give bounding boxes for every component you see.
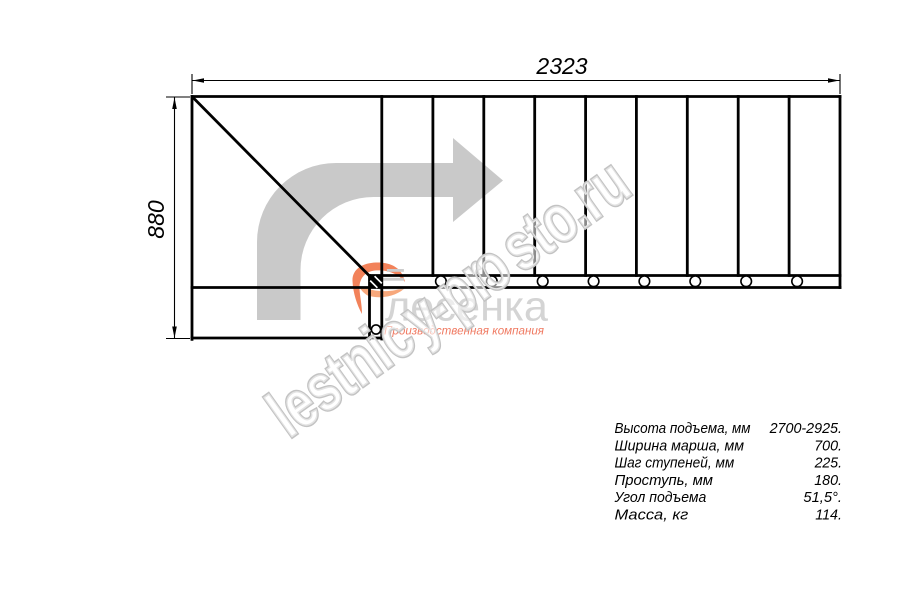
svg-text:180.: 180. — [814, 472, 842, 489]
svg-text:Шаг ступеней, мм: Шаг ступеней, мм — [615, 455, 735, 472]
svg-text:Угол подъема: Угол подъема — [614, 489, 707, 506]
svg-text:2323: 2323 — [535, 53, 587, 79]
svg-text:114.: 114. — [815, 507, 842, 524]
svg-text:Ширина марша, мм: Ширина марша, мм — [615, 438, 745, 455]
svg-text:225.: 225. — [814, 455, 842, 472]
svg-text:700.: 700. — [814, 438, 842, 455]
svg-text:880: 880 — [143, 200, 169, 239]
svg-text:51,5°.: 51,5°. — [803, 489, 842, 506]
svg-text:Проступь, мм: Проступь, мм — [615, 472, 713, 489]
svg-text:Высота подъема, мм: Высота подъема, мм — [615, 420, 751, 437]
svg-text:2700-2925.: 2700-2925. — [769, 420, 842, 437]
svg-text:Масса, кг: Масса, кг — [615, 507, 689, 524]
